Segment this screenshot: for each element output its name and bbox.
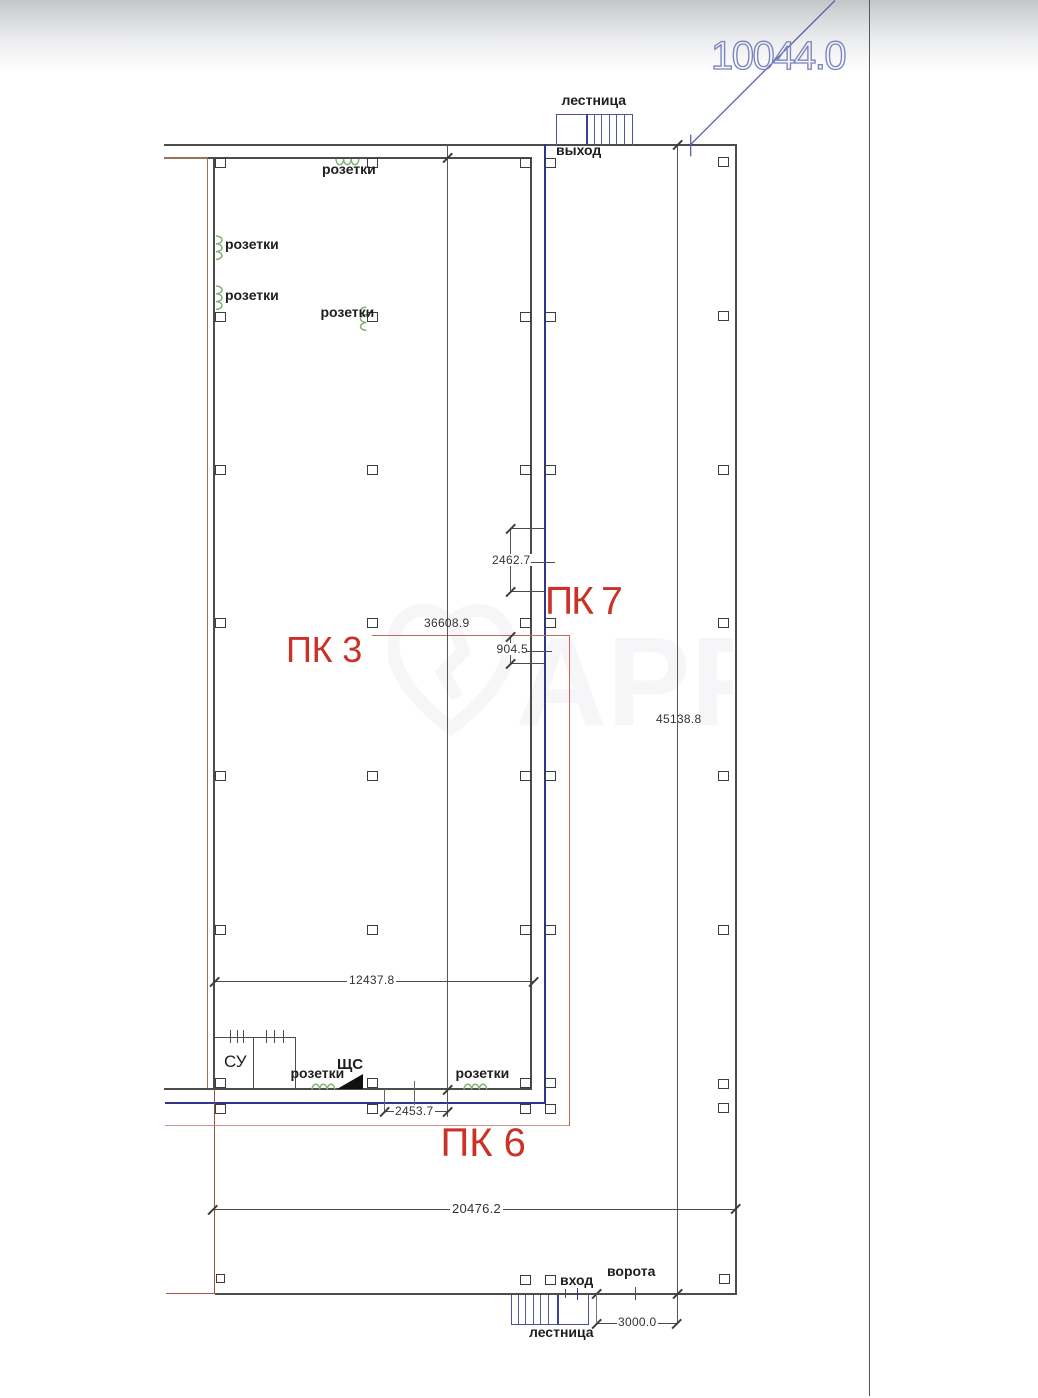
svg-text:АРР: АРР bbox=[516, 611, 733, 752]
